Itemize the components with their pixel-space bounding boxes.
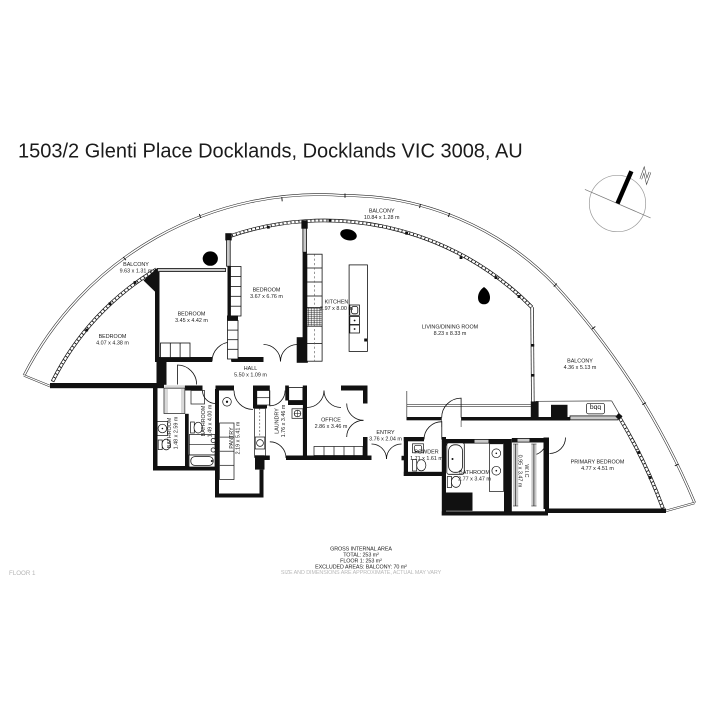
svg-text:2.77 x 3.47 m: 2.77 x 3.47 m [458,477,491,483]
svg-text:1.71 x 1.61 m: 1.71 x 1.61 m [410,456,443,462]
svg-text:W.I.C: W.I.C [523,464,529,477]
svg-text:SIZE AND DIMENSIONS ARE APPROX: SIZE AND DIMENSIONS ARE APPROXIMATE, ACT… [281,570,442,576]
svg-text:3.45 x 4.42 m: 3.45 x 4.42 m [175,318,208,324]
svg-text:BALCONY: BALCONY [123,262,149,268]
svg-text:POWDER: POWDER [414,450,438,456]
svg-text:2.97 x 8.00 m: 2.97 x 8.00 m [320,306,353,312]
svg-text:BATHROOM: BATHROOM [167,417,173,448]
svg-text:OFFICE: OFFICE [321,418,341,424]
svg-text:1503/2 Glenti Place Docklands,: 1503/2 Glenti Place Docklands, Docklands… [18,141,523,163]
svg-text:LAUNDRY: LAUNDRY [275,408,281,434]
svg-text:BATHROOM: BATHROOM [459,470,490,476]
svg-text:PRIMARY BEDROOM: PRIMARY BEDROOM [571,459,625,465]
svg-text:FLOOR 1: FLOOR 1 [9,570,36,577]
svg-text:5.50 x 1.09 m: 5.50 x 1.09 m [234,373,267,379]
svg-text:4.07 x 4.38 m: 4.07 x 4.38 m [96,341,129,347]
svg-text:BALCONY: BALCONY [567,358,593,364]
svg-text:LIVING/DINING ROOM: LIVING/DINING ROOM [422,325,479,331]
svg-text:BEDROOM: BEDROOM [178,312,206,318]
svg-text:PANTRY: PANTRY [229,427,235,449]
svg-text:ENTRY: ENTRY [376,430,395,436]
svg-text:8.23 x 8.33 m: 8.23 x 8.33 m [434,331,467,337]
svg-text:10.84 x 1.28 m: 10.84 x 1.28 m [364,215,400,221]
svg-text:1.76 x 3.46 m: 1.76 x 3.46 m [281,404,287,437]
svg-text:4.77 x 4.51 m: 4.77 x 4.51 m [581,466,614,472]
svg-text:BALCONY: BALCONY [369,208,395,214]
svg-text:bbq: bbq [590,403,602,410]
svg-text:2.86 x 3.46 m: 2.86 x 3.46 m [315,424,348,430]
svg-text:BEDROOM: BEDROOM [253,288,281,294]
svg-text:2.19 x 5.41 m: 2.19 x 5.41 m [235,421,241,454]
svg-text:BEDROOM: BEDROOM [99,334,127,340]
svg-text:3.76 x 2.04 m: 3.76 x 2.04 m [369,437,402,443]
svg-text:BATHROOM: BATHROOM [201,405,207,436]
svg-text:3.67 x 6.76 m: 3.67 x 6.76 m [250,294,283,300]
svg-text:1.49 x 4.00 m: 1.49 x 4.00 m [208,404,214,437]
svg-text:9.63 x 1.31 m: 9.63 x 1.31 m [120,268,153,274]
svg-text:1.48 x 2.59 m: 1.48 x 2.59 m [173,416,179,449]
svg-text:0.95 x 3.47 m: 0.95 x 3.47 m [517,455,523,488]
svg-text:4.36 x 5.13 m: 4.36 x 5.13 m [564,365,597,371]
svg-text:HALL: HALL [244,366,258,372]
svg-text:KITCHEN: KITCHEN [325,300,349,306]
